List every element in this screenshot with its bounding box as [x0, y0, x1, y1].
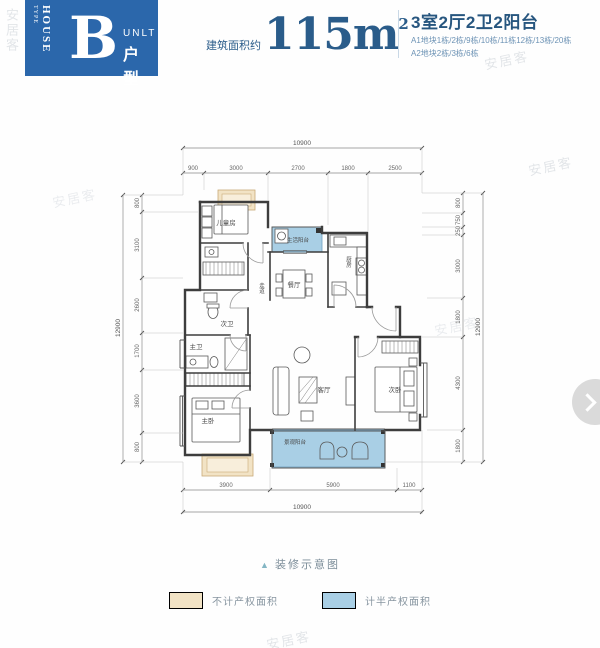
room-label-master-bedroom: 主卧: [202, 416, 216, 425]
chevron-right-icon: [578, 393, 596, 411]
toilet-tank: [207, 304, 219, 308]
house-type-letter: B: [69, 0, 118, 76]
badge-house-text: HOUSE: [40, 5, 52, 54]
room-label-dining: 餐厅: [288, 280, 302, 289]
watermark: 安居客: [2, 8, 21, 53]
dim-label: 12900: [115, 319, 122, 337]
wardrobe-icon: [186, 373, 244, 386]
room-label-master-bathroom: 主卫: [190, 342, 204, 351]
armchair-icon: [294, 347, 310, 363]
rug-hatch: [299, 377, 317, 403]
dim-label: 800: [135, 197, 141, 208]
badge-unit-cn: 户型: [123, 41, 158, 89]
vanity-icon: [186, 356, 208, 368]
doors: [230, 243, 396, 408]
dim-label: 3600: [135, 394, 141, 408]
legend-swatch-tan: [169, 592, 203, 609]
building-area-value: 115m: [264, 12, 398, 58]
dim-label: 800: [135, 441, 141, 452]
chair-icon: [306, 274, 312, 282]
dim-label: 3000: [456, 259, 462, 273]
door-arc: [243, 243, 263, 263]
dim-label: 2700: [291, 166, 305, 172]
dim-label: 900: [188, 166, 199, 172]
room-label-children-room: 儿童房: [216, 218, 236, 227]
dim-label: 250: [456, 225, 462, 236]
blocks-line-1: A1地块1栋/2栋/9栋/10栋/11栋12栋/13栋/20栋: [411, 36, 571, 46]
coffee-table-icon: [301, 411, 313, 421]
badge-vertical-text: TYPE HOUSE: [32, 5, 52, 54]
house-type-badge: TYPE HOUSE B UNLT 户型: [25, 0, 158, 76]
dim-label: 2600: [135, 298, 141, 312]
shower-hatch: [225, 338, 247, 370]
sofa-icon: [273, 367, 289, 415]
badge-unit-block: UNLT 户型: [123, 28, 158, 89]
nightstand-icon: [409, 413, 417, 421]
dim-label: 1100: [403, 483, 417, 489]
dim-label: 3900: [219, 483, 233, 489]
legend: 不计产权面积 计半产权面积: [0, 592, 600, 609]
washbasin-icon: [204, 293, 217, 302]
legend-item-half-property: 计半产权面积: [322, 592, 431, 609]
tv-cabinet-icon: [346, 377, 355, 405]
chair-icon: [276, 274, 282, 282]
room-label-life-balcony: 生活阳台: [287, 236, 310, 244]
room-label-second-bedroom: 次卧: [389, 385, 403, 394]
entry-wall: [367, 307, 400, 337]
legend-swatch-blue: [322, 592, 356, 609]
floor-plan-image[interactable]: 儿童房 生活阳台 厨房 餐厅 走道 次卫 主卫 主卧 客厅 次卧 景观阳台 10…: [80, 130, 510, 530]
dim-label: 10900: [293, 140, 311, 147]
legend-item-non-property: 不计产权面积: [169, 592, 278, 609]
dim-label: 12900: [475, 318, 482, 336]
plan-caption-text: 装修示意图: [275, 559, 340, 571]
plan-caption: ▲装修示意图: [0, 556, 600, 572]
blocks-line-2: A2地块2栋/3栋/6栋: [411, 49, 571, 59]
building-area: 建筑面积约 115m 2: [206, 12, 409, 58]
dim-label: 5900: [326, 483, 340, 489]
column-post: [381, 463, 385, 467]
bed-icon: [192, 398, 240, 442]
watermark: 安居客: [527, 152, 575, 180]
dim-label: 10900: [293, 504, 311, 511]
room-label-living-room: 客厅: [318, 385, 332, 394]
room-label-kitchen: 厨房: [345, 256, 352, 269]
legend-label: 计半产权面积: [365, 593, 431, 608]
chair-icon: [306, 288, 312, 296]
dim-label: 800: [456, 197, 462, 208]
room-label-corridor: 走道: [258, 281, 265, 295]
dim-label: 4300: [456, 376, 462, 390]
wardrobe-icon: [382, 341, 418, 353]
wardrobe-icon: [202, 228, 212, 238]
dim-label: 1800: [456, 439, 462, 453]
chair-icon: [276, 288, 282, 296]
room-label-view-balcony: 景观阳台: [284, 438, 307, 446]
wardrobe-icon: [202, 217, 212, 227]
dim-label: 3000: [229, 166, 243, 172]
entry-door-arc: [372, 307, 396, 331]
planter-top-inner: [222, 194, 251, 206]
nightstand-icon: [409, 358, 417, 366]
column-post: [316, 228, 321, 233]
badge-type-text: TYPE: [32, 5, 38, 54]
header-divider: [398, 10, 399, 58]
room-label-second-bathroom: 次卫: [221, 319, 235, 328]
layout-title: 3室2厅2卫2阳台: [411, 8, 571, 33]
dim-label: 2500: [388, 166, 402, 172]
wardrobe-icon: [202, 206, 212, 216]
dim-label: 3100: [135, 238, 141, 252]
building-area-superscript: 2: [398, 15, 408, 33]
watermark: 安居客: [265, 626, 313, 648]
floor-plan-page: 安居客 安居客 安居客 安居客 安居客 安居客 TYPE HOUSE B UNL…: [0, 0, 600, 648]
toilet-icon: [210, 357, 218, 368]
layout-summary: 3室2厅2卫2阳台 A1地块1栋/2栋/9栋/10栋/11栋12栋/13栋/20…: [411, 8, 571, 59]
dim-label: 1700: [135, 344, 141, 358]
planter-bottom-inner: [207, 458, 248, 472]
dim-label: 1800: [456, 310, 462, 324]
badge-unit-en: UNLT: [123, 28, 158, 39]
door-arc: [358, 337, 378, 357]
triangle-icon: ▲: [260, 560, 271, 570]
dim-label: 750: [456, 214, 462, 225]
next-image-button[interactable]: [572, 379, 600, 425]
building-area-prefix: 建筑面积约: [206, 37, 261, 53]
bay-window: [420, 363, 427, 417]
sink-icon: [205, 247, 218, 257]
door-arc: [230, 290, 248, 308]
dim-label: 1800: [341, 166, 355, 172]
legend-label: 不计产权面积: [212, 593, 278, 608]
